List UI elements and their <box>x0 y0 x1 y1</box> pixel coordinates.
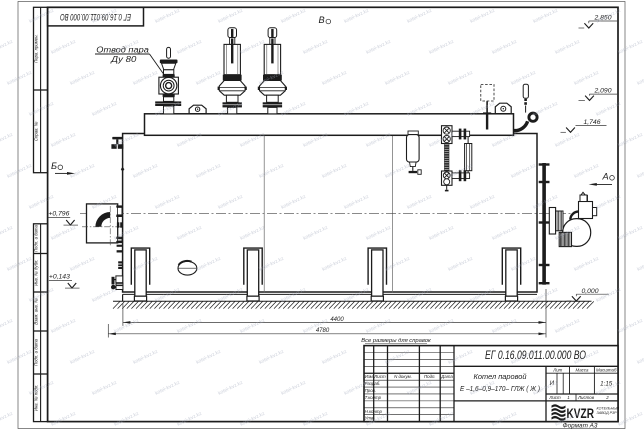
svg-text:Изм.: Изм. <box>365 374 374 379</box>
svg-text:Формат А3: Формат А3 <box>563 422 598 429</box>
svg-text:+0,796: +0,796 <box>48 211 69 218</box>
svg-text:Ду 80: Ду 80 <box>110 54 136 64</box>
svg-text:Дата: Дата <box>440 374 453 379</box>
svg-text:Котел паровой: Котел паровой <box>473 372 526 381</box>
svg-text:Лит: Лит <box>552 367 562 372</box>
svg-text:В: В <box>319 15 325 25</box>
svg-text:0,000: 0,000 <box>581 288 598 295</box>
svg-text:Справ. №: Справ. № <box>33 121 38 141</box>
svg-text:А: А <box>602 172 609 182</box>
svg-text:1,746: 1,746 <box>583 119 600 126</box>
svg-text:Н.контр: Н.контр <box>365 409 383 414</box>
svg-text:Масса: Масса <box>576 367 590 372</box>
svg-text:Лист: Лист <box>548 395 561 400</box>
svg-text:2,090: 2,090 <box>593 88 611 95</box>
svg-text:Подп. и дата: Подп. и дата <box>33 338 38 366</box>
svg-text:Подп.: Подп. <box>424 374 436 379</box>
svg-text:Т.контр: Т.контр <box>365 395 382 400</box>
svg-text:Листов: Листов <box>577 395 595 400</box>
svg-text:Лист: Лист <box>373 374 386 379</box>
svg-text:ЗАВОД РЗР: ЗАВОД РЗР <box>597 411 618 415</box>
svg-text:4400: 4400 <box>330 317 344 323</box>
svg-text:Масштаб: Масштаб <box>596 367 617 372</box>
svg-text:Перв. примен.: Перв. примен. <box>33 34 38 63</box>
svg-text:N докум.: N докум. <box>394 374 412 379</box>
svg-text:Все размеры для справок: Все размеры для справок <box>361 338 431 344</box>
svg-text:+0,143: +0,143 <box>49 274 70 281</box>
svg-text:4780: 4780 <box>316 328 330 334</box>
svg-text:ЕГ 0.16.09.011.00.000 ВО: ЕГ 0.16.09.011.00.000 ВО <box>485 348 586 362</box>
svg-text:2: 2 <box>605 395 609 400</box>
svg-text:КОТЕЛЬНЫЙ: КОТЕЛЬНЫЙ <box>597 407 620 411</box>
svg-text:Пров.: Пров. <box>365 388 377 393</box>
svg-text:Инв. № дубл.: Инв. № дубл. <box>33 259 38 285</box>
svg-text:Подп. и дата: Подп. и дата <box>33 225 38 253</box>
svg-text:Б: Б <box>51 161 57 171</box>
